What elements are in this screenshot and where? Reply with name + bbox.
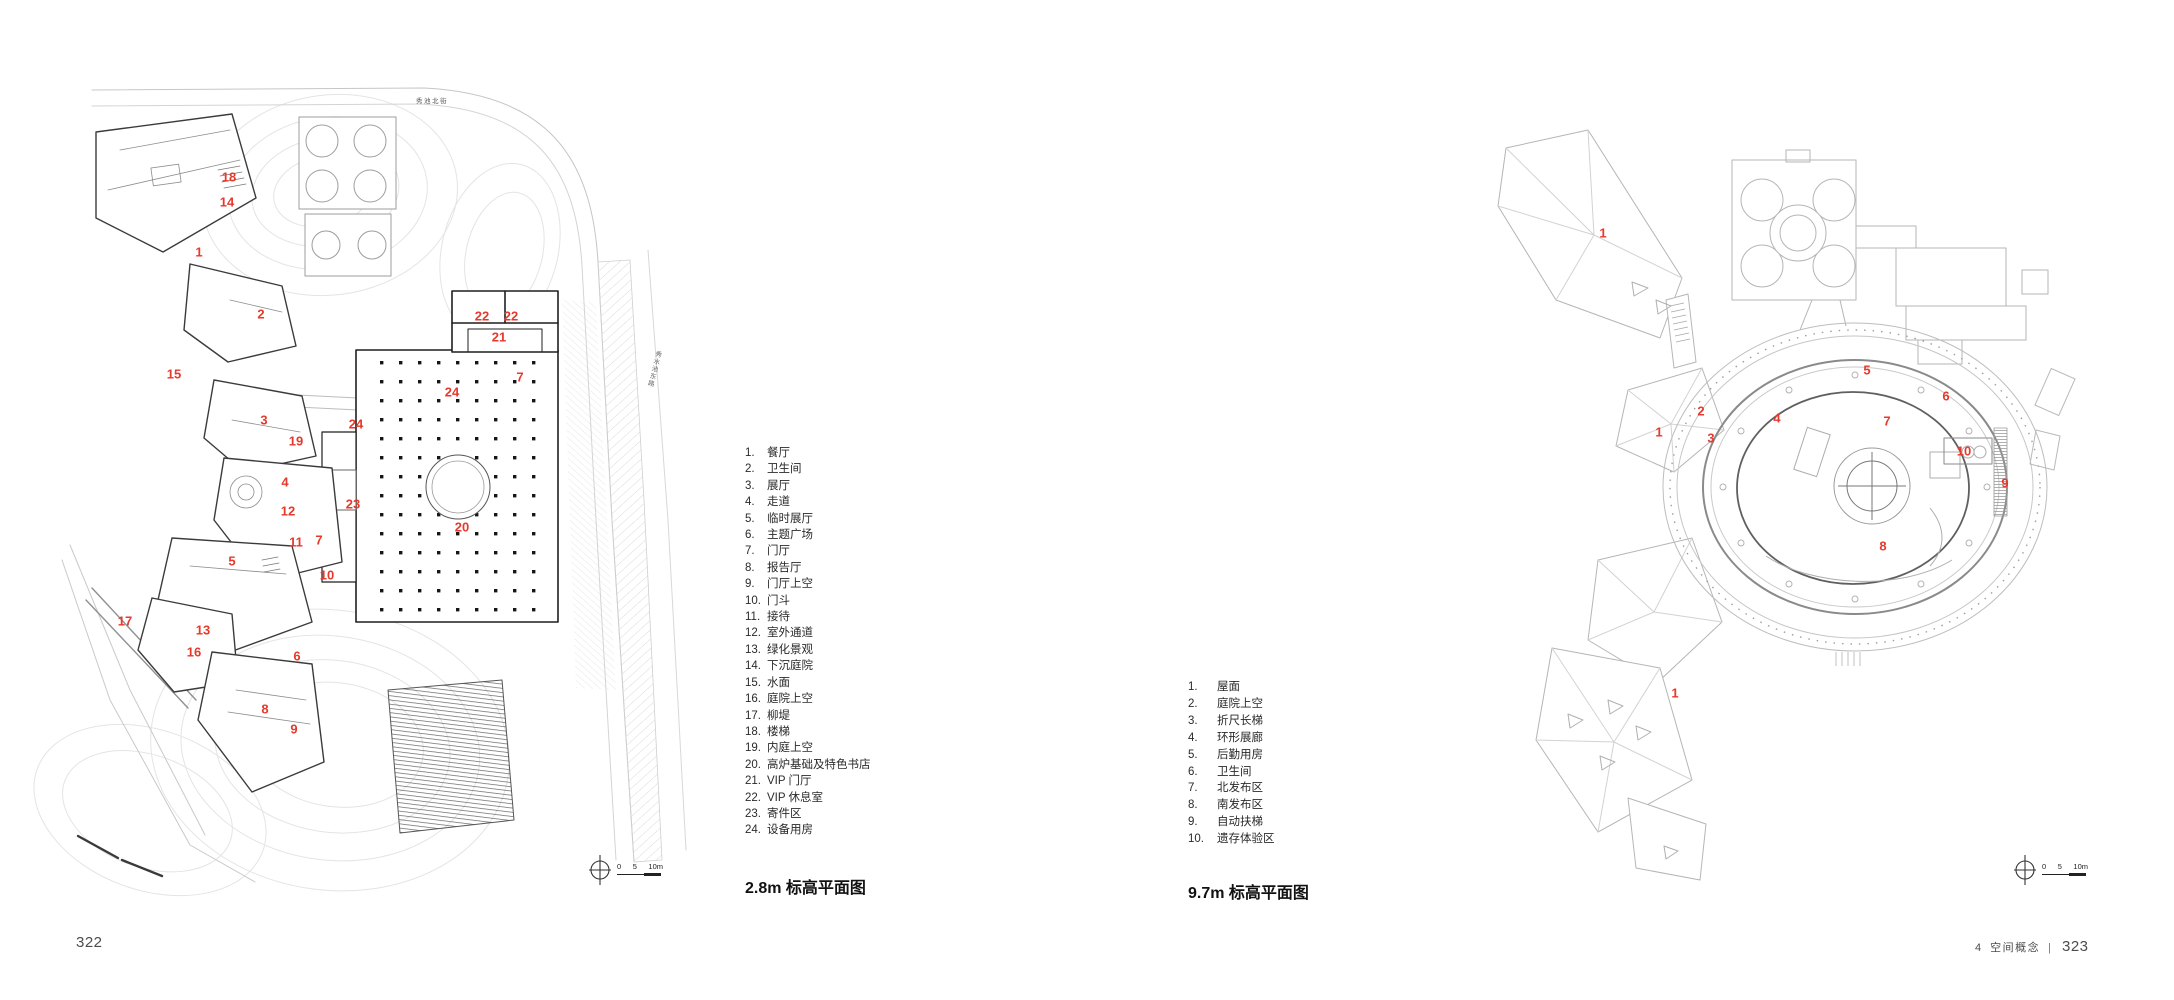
legend-item-number: 15.	[745, 675, 767, 691]
legend-item-label: 庭院上空	[1217, 696, 1263, 713]
ring-east-bits	[2030, 368, 2075, 470]
legend-item-label: VIP 休息室	[767, 790, 823, 806]
legend-item: 10. 遗存体验区	[1188, 831, 1275, 848]
left-floor-plan	[10, 78, 686, 926]
scale-tick-10m: 10m	[648, 862, 663, 871]
legend-item: 8. 南发布区	[1188, 797, 1275, 814]
scale-ticks: 0 5 10m	[2042, 862, 2088, 871]
legend-item-label: 环形展廊	[1217, 730, 1263, 747]
legend-item: 2. 庭院上空	[1188, 696, 1275, 713]
legend-item-label: 北发布区	[1217, 780, 1263, 797]
scale-tick-0: 0	[617, 862, 621, 871]
legend-item-number: 6.	[745, 527, 767, 543]
legend-item-label: 设备用房	[767, 822, 813, 838]
legend-item: 8. 报告厅	[745, 560, 871, 576]
legend-item-label: 走道	[767, 494, 790, 510]
legend-item: 9. 门厅上空	[745, 576, 871, 592]
legend-item-number: 3.	[745, 478, 767, 494]
legend-item-label: 内庭上空	[767, 740, 813, 756]
legend-item: 7. 门厅	[745, 543, 871, 559]
legend-item: 4. 环形展廊	[1188, 730, 1275, 747]
legend-item: 6. 卫生间	[1188, 764, 1275, 781]
legend-item-label: 临时展厅	[767, 511, 813, 527]
legend-item: 15. 水面	[745, 675, 871, 691]
legend-item-number: 10.	[745, 593, 767, 609]
left-plan-legend: 1. 餐厅 2. 卫生间 3. 展厅 4. 走道 5. 临时展厅	[745, 445, 871, 839]
scale-tick-5: 5	[2058, 862, 2062, 871]
legend-item-label: 寄件区	[767, 806, 802, 822]
legend-item: 10. 门斗	[745, 593, 871, 609]
legend-item-label: 遗存体验区	[1217, 831, 1275, 848]
legend-item-label: 展厅	[767, 478, 790, 494]
legend-item: 5. 临时展厅	[745, 511, 871, 527]
legend-item-number: 1.	[1188, 679, 1217, 696]
legend-item-label: 高炉基础及特色书店	[767, 757, 871, 773]
road-label-north: 秀池北街	[416, 95, 448, 105]
legend-item: 14. 下沉庭院	[745, 658, 871, 674]
right-scale-bar: 0 5 10m	[2042, 862, 2088, 876]
escalator-strip	[1994, 428, 2007, 516]
legend-item: 7. 北发布区	[1188, 780, 1275, 797]
south-stair	[1836, 652, 1860, 666]
ring-interior	[1766, 427, 1992, 581]
circular-gallery	[1663, 323, 2047, 651]
legend-item-number: 11.	[745, 609, 767, 625]
north-compass-icon	[2010, 853, 2040, 887]
stove-cluster-right	[1732, 150, 2048, 364]
legend-item: 22. VIP 休息室	[745, 790, 871, 806]
legend-item-number: 17.	[745, 708, 767, 724]
page-number-right: 323	[2062, 938, 2089, 955]
left-plan-caption: 2.8m 标高平面图	[745, 874, 866, 898]
north-compass-icon	[585, 853, 615, 887]
legend-item-label: 卫生间	[767, 461, 802, 477]
legend-item-number: 14.	[745, 658, 767, 674]
legend-item-number: 5.	[1188, 747, 1217, 764]
legend-item: 5. 后勤用房	[1188, 747, 1275, 764]
legend-item-number: 22.	[745, 790, 767, 806]
legend-item-number: 1.	[745, 445, 767, 461]
scale-bar-line	[617, 872, 663, 876]
legend-item: 18. 楼梯	[745, 724, 871, 740]
left-scale-bar: 0 5 10m	[617, 862, 663, 876]
legend-item-label: 庭院上空	[767, 691, 813, 707]
legend-item-label: 折尺长梯	[1217, 713, 1263, 730]
legend-item-number: 24.	[745, 822, 767, 838]
legend-item: 3. 展厅	[745, 478, 871, 494]
scale-bar-line	[2042, 872, 2088, 876]
legend-item: 13. 绿化景观	[745, 642, 871, 658]
legend-item: 19. 内庭上空	[745, 740, 871, 756]
legend-item-number: 10.	[1188, 831, 1217, 848]
legend-item-label: 门厅上空	[767, 576, 813, 592]
chapter-title: 空间概念	[1990, 939, 2040, 955]
legend-item-label: 自动扶梯	[1217, 814, 1263, 831]
legend-item-number: 8.	[745, 560, 767, 576]
floor-plans-drawing	[0, 0, 2174, 1000]
legend-item: 24. 设备用房	[745, 822, 871, 838]
legend-item-label: 餐厅	[767, 445, 790, 461]
right-plan-legend: 1. 屋面 2. 庭院上空 3. 折尺长梯 4. 环形展廊 5. 后勤用房	[1188, 679, 1275, 848]
right-floor-plan	[1498, 130, 2075, 880]
main-hall	[322, 291, 558, 622]
legend-item: 20. 高炉基础及特色书店	[745, 757, 871, 773]
legend-item-number: 13.	[745, 642, 767, 658]
right-plan-caption: 9.7m 标高平面图	[1188, 879, 1309, 903]
legend-item-label: 柳堤	[767, 708, 790, 724]
legend-item-number: 2.	[1188, 696, 1217, 713]
legend-item-label: 后勤用房	[1217, 747, 1263, 764]
legend-item-number: 7.	[1188, 780, 1217, 797]
chapter-number: 4	[1975, 942, 1981, 954]
legend-item-label: 下沉庭院	[767, 658, 813, 674]
legend-item-number: 4.	[745, 494, 767, 510]
footer-right: 4 空间概念 | 323	[1975, 938, 2089, 955]
legend-item-label: 室外通道	[767, 625, 813, 641]
legend-item: 12. 室外通道	[745, 625, 871, 641]
legend-item-label: 门厅	[767, 543, 790, 559]
roof-modules	[1498, 130, 1724, 880]
legend-item-label: 南发布区	[1217, 797, 1263, 814]
footer-divider: |	[2048, 942, 2051, 954]
book-spread: 秀池北街 秀水池东路 18 14 1 2 15 3 19 24 22 22 21…	[0, 0, 2174, 1000]
scale-tick-0: 0	[2042, 862, 2046, 871]
legend-item-number: 8.	[1188, 797, 1217, 814]
legend-item-number: 18.	[745, 724, 767, 740]
legend-item-number: 19.	[745, 740, 767, 756]
legend-item: 21. VIP 门厅	[745, 773, 871, 789]
legend-item: 3. 折尺长梯	[1188, 713, 1275, 730]
legend-item-number: 2.	[745, 461, 767, 477]
legend-item-number: 6.	[1188, 764, 1217, 781]
legend-item: 2. 卫生间	[745, 461, 871, 477]
legend-item-number: 20.	[745, 757, 767, 773]
page-number-left: 322	[76, 934, 103, 951]
stove-cluster-left	[299, 117, 396, 276]
legend-item: 16. 庭院上空	[745, 691, 871, 707]
legend-item: 17. 柳堤	[745, 708, 871, 724]
legend-item: 11. 接待	[745, 609, 871, 625]
legend-item-label: 卫生间	[1217, 764, 1252, 781]
legend-item: 4. 走道	[745, 494, 871, 510]
legend-item-number: 9.	[1188, 814, 1217, 831]
legend-item-number: 4.	[1188, 730, 1217, 747]
legend-item-number: 23.	[745, 806, 767, 822]
legend-item-number: 12.	[745, 625, 767, 641]
scale-tick-10m: 10m	[2073, 862, 2088, 871]
legend-item: 1. 屋面	[1188, 679, 1275, 696]
legend-item-label: 报告厅	[767, 560, 802, 576]
legend-item-number: 3.	[1188, 713, 1217, 730]
legend-item-label: 主题广场	[767, 527, 813, 543]
legend-item-label: 楼梯	[767, 724, 790, 740]
legend-item: 23. 寄件区	[745, 806, 871, 822]
legend-item-label: 绿化景观	[767, 642, 813, 658]
legend-item-label: 接待	[767, 609, 790, 625]
scale-tick-5: 5	[633, 862, 637, 871]
legend-item-number: 7.	[745, 543, 767, 559]
legend-item-number: 21.	[745, 773, 767, 789]
legend-item-label: 水面	[767, 675, 790, 691]
legend-item-label: VIP 门厅	[767, 773, 812, 789]
ring-columns	[1720, 372, 1990, 602]
legend-item-label: 屋面	[1217, 679, 1240, 696]
legend-item: 9. 自动扶梯	[1188, 814, 1275, 831]
legend-item-number: 16.	[745, 691, 767, 707]
louver-roof	[388, 680, 514, 833]
legend-item: 6. 主题广场	[745, 527, 871, 543]
legend-item-number: 9.	[745, 576, 767, 592]
legend-item: 1. 餐厅	[745, 445, 871, 461]
legend-item-label: 门斗	[767, 593, 790, 609]
legend-item-number: 5.	[745, 511, 767, 527]
scale-ticks: 0 5 10m	[617, 862, 663, 871]
